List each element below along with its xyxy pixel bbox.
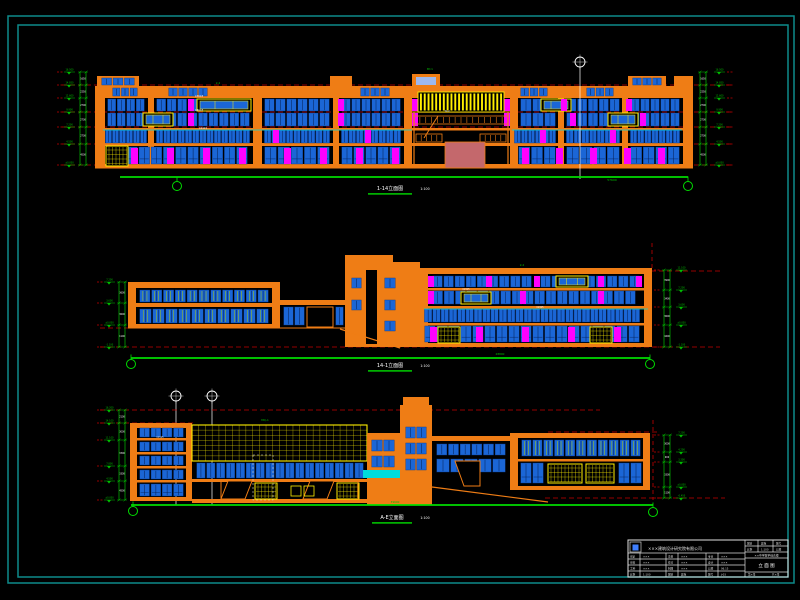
cad-drawing-page: 1-14立面图1:1002-2BY-157600C3618C3618C2415T… [0,0,800,600]
svg-text:57600: 57600 [607,178,617,182]
svg-text:±0.000: ±0.000 [715,162,724,165]
svg-text:建施: 建施 [761,542,767,546]
svg-text:3.300: 3.300 [678,459,685,462]
svg-text:2700: 2700 [80,119,86,122]
svg-text:×××: ××× [643,567,650,571]
svg-text:图别: 图别 [747,542,753,546]
svg-text:3.600: 3.600 [106,300,113,303]
svg-text:14.850: 14.850 [715,82,724,85]
svg-text:16.500: 16.500 [65,69,74,72]
svg-text:4.500: 4.500 [106,478,113,481]
svg-text:3300: 3300 [119,452,125,455]
svg-text:专业: 专业 [708,555,714,559]
svg-text:TL-2: TL-2 [444,109,450,113]
architectural-elevations-drawing: 1-14立面图1:1002-2BY-157600C3618C3618C2415T… [0,0,800,600]
svg-text:C2415: C2415 [536,306,544,309]
svg-text:图号: 图号 [776,542,782,546]
svg-text:3000: 3000 [119,431,125,434]
svg-text:C3618: C3618 [195,94,204,98]
svg-text:4.500: 4.500 [66,141,73,144]
svg-text:1:100: 1:100 [643,573,651,577]
svg-text:12.600: 12.600 [715,95,724,98]
title-block: ×××建筑设计研究院有限公司审定×××项目×××专业×××审核×××校对×××设… [628,540,788,577]
svg-text:图号: 图号 [708,573,714,577]
svg-text:A-E立面图: A-E立面图 [380,514,403,521]
svg-text:4500: 4500 [700,154,706,157]
svg-text:1100: 1100 [119,335,125,338]
svg-text:3600: 3600 [119,313,125,316]
svg-text:2250: 2250 [80,91,86,94]
svg-text:2700: 2700 [80,135,86,138]
svg-text:2100: 2100 [119,416,125,419]
svg-text:1-14立面图: 1-14立面图 [377,185,403,192]
svg-text:9.900: 9.900 [66,109,73,112]
svg-text:1:100: 1:100 [761,548,769,552]
svg-text:11.100: 11.100 [677,267,686,270]
elevation-middle: 7.20036003.6003600±0.0001100-1.10011.100… [97,243,720,372]
svg-text:BY-1: BY-1 [427,67,433,71]
svg-text:3400: 3400 [664,298,670,301]
svg-text:7.800: 7.800 [106,463,113,466]
svg-text:3600: 3600 [119,292,125,295]
svg-text:校对: 校对 [668,561,674,565]
svg-text:3300: 3300 [119,473,125,476]
svg-text:2700: 2700 [700,119,706,122]
svg-text:7.200: 7.200 [678,432,685,435]
svg-text:×××: ××× [721,561,728,565]
svg-text:C1515: C1515 [156,436,164,439]
svg-text:设计: 设计 [708,561,714,565]
svg-text:4500: 4500 [119,490,125,493]
svg-text:2700: 2700 [700,135,706,138]
svg-text:比例: 比例 [747,548,753,552]
svg-text:-1.100: -1.100 [678,344,686,347]
svg-text:-0.450: -0.450 [678,495,686,498]
svg-text:4.500: 4.500 [716,141,723,144]
svg-text:×××: ××× [643,561,650,565]
svg-text:×××: ××× [721,555,728,559]
svg-text:3.600: 3.600 [678,304,685,307]
svg-text:1650: 1650 [80,78,86,81]
svg-text:3000: 3000 [664,443,670,446]
svg-text:11.100: 11.100 [105,437,114,440]
svg-text:1:100: 1:100 [420,187,429,191]
svg-text:C2415: C2415 [199,126,208,130]
svg-text:4500: 4500 [80,154,86,157]
svg-text:工种: 工种 [630,567,636,571]
svg-text:项目: 项目 [668,555,674,559]
svg-text:900: 900 [665,456,670,459]
svg-text:日期: 日期 [776,548,782,552]
svg-text:14.100: 14.100 [105,420,114,423]
svg-text:-1.100: -1.100 [106,344,114,347]
svg-text:2250: 2250 [700,91,706,94]
svg-text:比例: 比例 [630,573,636,577]
svg-text:±0.000: ±0.000 [677,484,686,487]
svg-text:C2415: C2415 [462,288,470,291]
svg-text:12.600: 12.600 [65,95,74,98]
svg-text:J-03: J-03 [720,573,726,577]
elevation-top: 1-14立面图1:1002-2BY-157600C3618C3618C2415T… [57,55,733,195]
svg-text:7.200: 7.200 [716,124,723,127]
svg-text:9.900: 9.900 [716,109,723,112]
svg-text:28800: 28800 [496,352,505,356]
svg-text:C3618: C3618 [195,108,204,112]
svg-text:16.200: 16.200 [105,407,114,410]
svg-text:×××: ××× [681,561,688,565]
svg-text:×××: ××× [643,555,650,559]
svg-text:第×张: 第×张 [748,573,756,577]
svg-text:16.500: 16.500 [715,69,724,72]
svg-text:4.200: 4.200 [678,449,685,452]
svg-text:1650: 1650 [700,78,706,81]
svg-text:39600: 39600 [391,500,400,504]
svg-text:3300: 3300 [664,474,670,477]
svg-text:2700: 2700 [700,104,706,107]
svg-text:图别: 图别 [668,573,674,577]
svg-text:±0.000: ±0.000 [677,322,686,325]
svg-text:××中学教学综合楼: ××中学教学综合楼 [754,554,778,558]
svg-text:3900: 3900 [664,279,670,282]
svg-text:4400: 4400 [664,335,670,338]
svg-text:±0.000: ±0.000 [105,322,114,325]
svg-text:14-1立面图: 14-1立面图 [377,362,403,369]
svg-text:共×张: 共×张 [772,573,780,577]
svg-text:×××: ××× [681,555,688,559]
svg-text:3600: 3600 [664,315,670,318]
svg-text:7.200: 7.200 [66,124,73,127]
svg-text:×××建筑设计研究院有限公司: ×××建筑设计研究院有限公司 [648,545,702,551]
svg-text:建施: 建施 [681,573,687,577]
elevation-bottom: MQ-116.200210014.100300011.10033007.8003… [97,389,725,524]
svg-text:7.200: 7.200 [678,287,685,290]
svg-text:日期: 日期 [708,567,714,571]
svg-text:×××: ××× [681,567,688,571]
svg-text:±0.000: ±0.000 [65,162,74,165]
svg-text:1100: 1100 [664,492,670,495]
svg-text:06.15: 06.15 [721,567,729,571]
svg-text:7.200: 7.200 [106,279,113,282]
svg-text:2-2: 2-2 [520,263,525,267]
svg-text:制图: 制图 [668,567,674,571]
svg-text:审定: 审定 [630,555,636,559]
svg-text:立 面 图: 立 面 图 [758,562,775,569]
svg-text:审核: 审核 [630,561,636,565]
svg-text:1:100: 1:100 [420,516,429,520]
svg-text:14.850: 14.850 [65,82,74,85]
svg-text:±0.000: ±0.000 [105,497,114,500]
svg-text:2-2: 2-2 [216,81,221,85]
svg-text:MQ-1: MQ-1 [261,418,269,422]
svg-text:2700: 2700 [80,104,86,107]
svg-text:1:100: 1:100 [420,364,429,368]
